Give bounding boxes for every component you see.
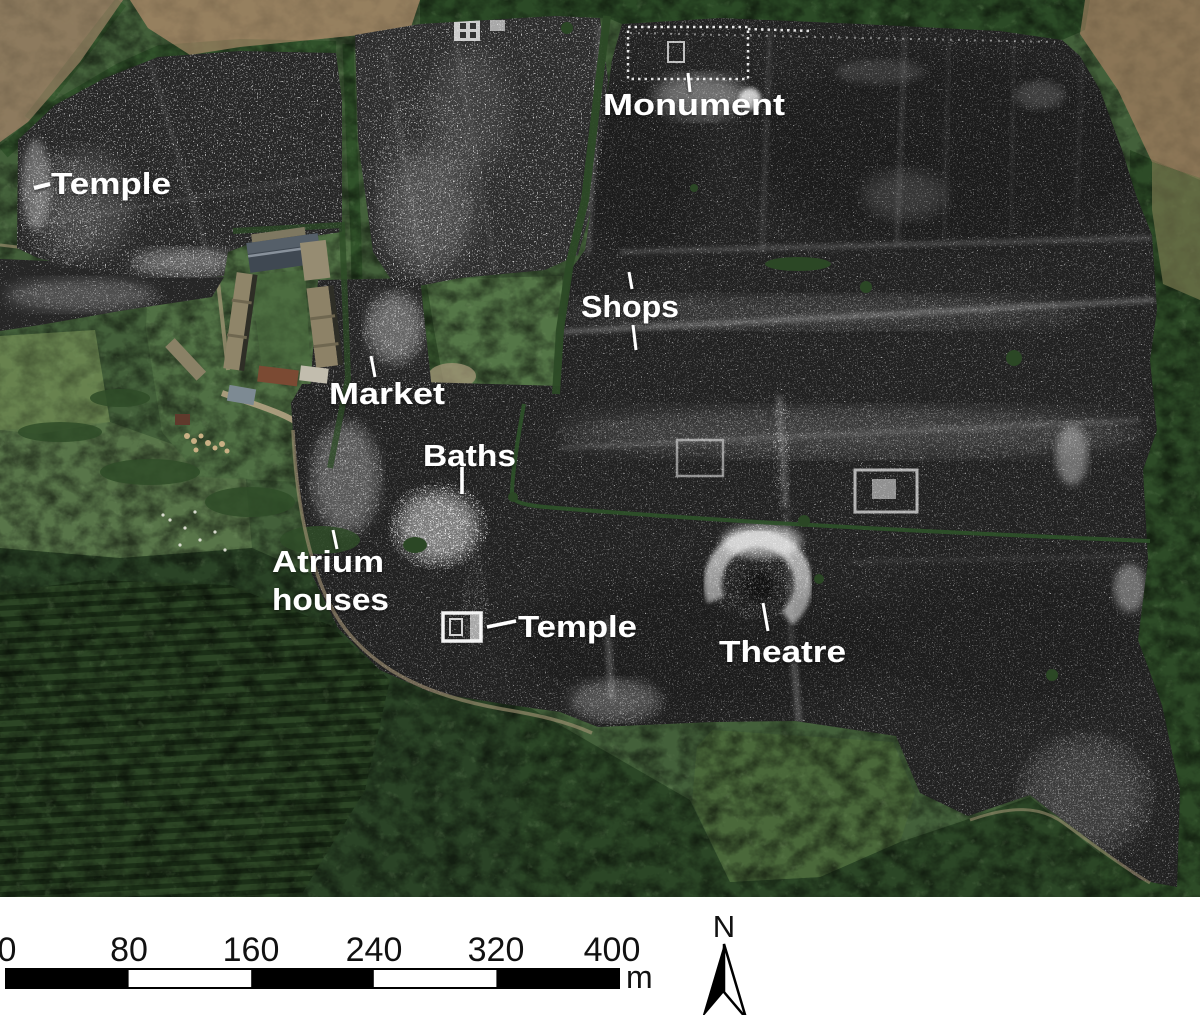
svg-text:Temple: Temple (518, 609, 637, 644)
svg-text:Market: Market (329, 376, 445, 411)
svg-text:0: 0 (0, 931, 16, 969)
svg-text:houses: houses (272, 582, 389, 617)
svg-text:m: m (626, 959, 653, 995)
svg-text:320: 320 (468, 931, 525, 969)
svg-text:Atrium: Atrium (272, 544, 384, 579)
svg-text:Temple: Temple (51, 166, 171, 201)
svg-text:Theatre: Theatre (719, 634, 846, 669)
svg-text:Baths: Baths (423, 438, 516, 473)
svg-text:80: 80 (110, 931, 148, 969)
svg-text:Monument: Monument (603, 87, 785, 122)
svg-text:240: 240 (346, 931, 403, 969)
svg-text:N: N (713, 909, 735, 944)
svg-text:Shops: Shops (581, 289, 679, 324)
svg-text:160: 160 (223, 931, 280, 969)
